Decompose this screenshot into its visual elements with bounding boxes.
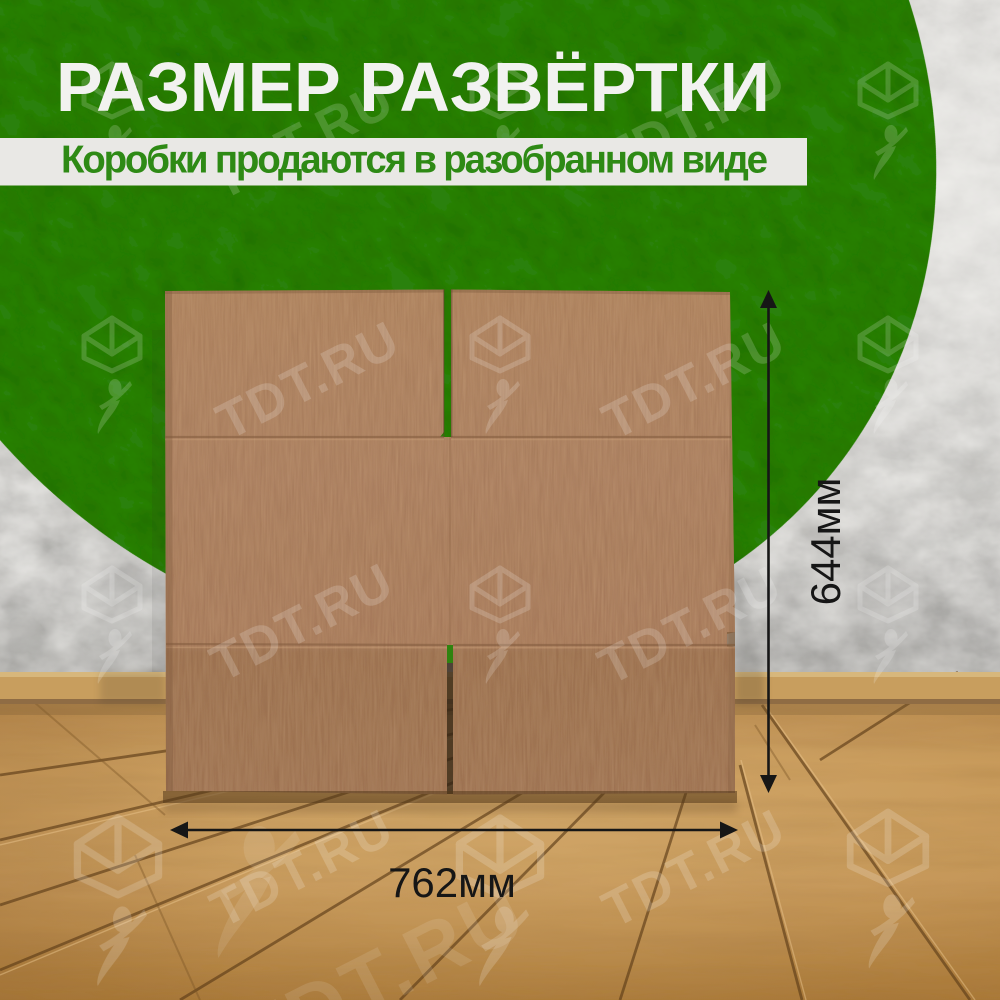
svg-text:762мм: 762мм bbox=[388, 859, 516, 906]
svg-text:644мм: 644мм bbox=[802, 478, 849, 606]
svg-text:Коробки продаются в разобранно: Коробки продаются в разобранном виде bbox=[61, 139, 768, 182]
svg-text:РАЗМЕР РАЗВЁРТКИ: РАЗМЕР РАЗВЁРТКИ bbox=[56, 48, 770, 126]
